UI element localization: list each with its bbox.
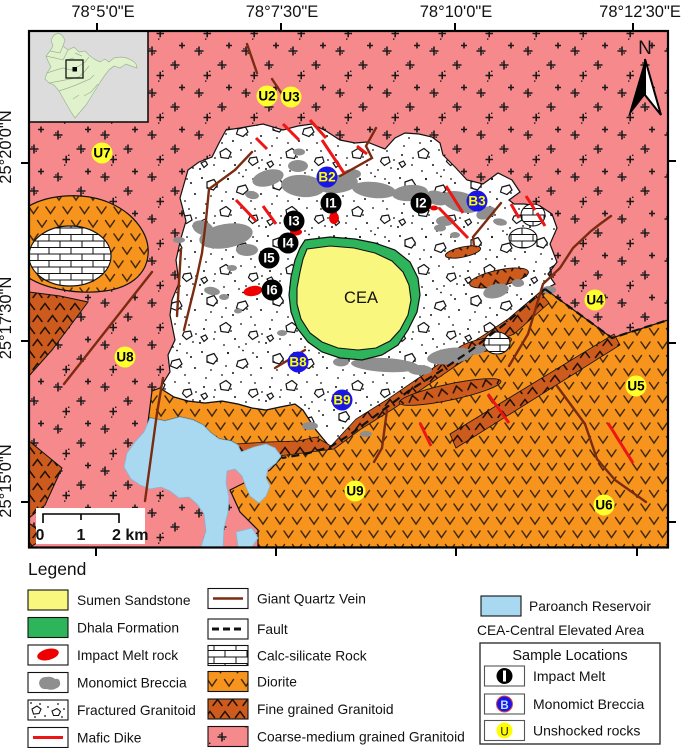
svg-text:U8: U8 — [116, 350, 134, 365]
svg-text:Calc-silicate Rock: Calc-silicate Rock — [257, 649, 367, 664]
svg-text:CEA-Central Elevated Area: CEA-Central Elevated Area — [477, 623, 645, 638]
svg-text:Paroanch Reservoir: Paroanch Reservoir — [529, 599, 651, 614]
svg-text:Legend: Legend — [28, 559, 86, 579]
svg-text:Mafic Dike: Mafic Dike — [77, 731, 142, 746]
svg-text:B9: B9 — [333, 393, 350, 408]
svg-text:Dhala Formation: Dhala Formation — [77, 621, 179, 636]
svg-text:Giant Quartz Vein: Giant Quartz Vein — [257, 592, 366, 607]
svg-text:U9: U9 — [346, 484, 363, 499]
svg-text:78°7'30"E: 78°7'30"E — [246, 3, 319, 21]
svg-text:25°17'30"N: 25°17'30"N — [0, 277, 15, 360]
svg-text:CEA: CEA — [344, 289, 378, 307]
svg-text:Impact Melt rock: Impact Melt rock — [77, 648, 178, 663]
svg-text:I3: I3 — [288, 214, 300, 229]
svg-text:U5: U5 — [627, 379, 645, 394]
svg-text:B2: B2 — [318, 170, 335, 185]
svg-text:U6: U6 — [595, 498, 613, 513]
svg-text:I4: I4 — [282, 236, 294, 251]
svg-text:Impact Melt: Impact Melt — [533, 668, 605, 684]
svg-text:78°12'30"E: 78°12'30"E — [599, 3, 681, 21]
svg-text:U7: U7 — [93, 146, 110, 161]
svg-text:B8: B8 — [289, 355, 307, 370]
svg-text:U4: U4 — [586, 293, 604, 308]
svg-text:Fractured Granitoid: Fractured Granitoid — [77, 703, 196, 718]
svg-text:Sumen Sandstone: Sumen Sandstone — [77, 593, 191, 608]
svg-text:B: B — [500, 700, 508, 712]
svg-text:25°15'0"N: 25°15'0"N — [0, 444, 15, 517]
svg-text:I2: I2 — [415, 196, 426, 211]
svg-text:U2: U2 — [258, 89, 275, 104]
svg-text:Unshocked rocks: Unshocked rocks — [533, 723, 640, 739]
svg-text:2 km: 2 km — [112, 527, 148, 544]
svg-text:U3: U3 — [282, 90, 300, 105]
svg-text:Coarse-medium grained Granitoi: Coarse-medium grained Granitoid — [257, 730, 465, 745]
svg-text:U: U — [500, 727, 508, 739]
svg-text:I5: I5 — [263, 251, 275, 266]
svg-text:Fine grained Granitoid: Fine grained Granitoid — [257, 702, 394, 717]
svg-text:Sample Locations: Sample Locations — [512, 648, 627, 664]
svg-text:N: N — [638, 38, 652, 59]
svg-text:Monomict Breccia: Monomict Breccia — [77, 676, 187, 691]
svg-text:78°10'0"E: 78°10'0"E — [420, 3, 493, 21]
svg-text:Monomict Breccia: Monomict Breccia — [533, 696, 644, 712]
svg-text:I6: I6 — [266, 283, 278, 298]
svg-text:Diorite: Diorite — [257, 675, 297, 690]
svg-text:I1: I1 — [325, 196, 337, 211]
svg-text:25°20'0"N: 25°20'0"N — [0, 110, 15, 183]
svg-text:1: 1 — [77, 527, 86, 544]
svg-text:B3: B3 — [468, 194, 486, 209]
svg-text:0: 0 — [36, 527, 45, 544]
svg-text:Fault: Fault — [257, 622, 288, 637]
svg-text:78°5'0"E: 78°5'0"E — [71, 3, 134, 21]
